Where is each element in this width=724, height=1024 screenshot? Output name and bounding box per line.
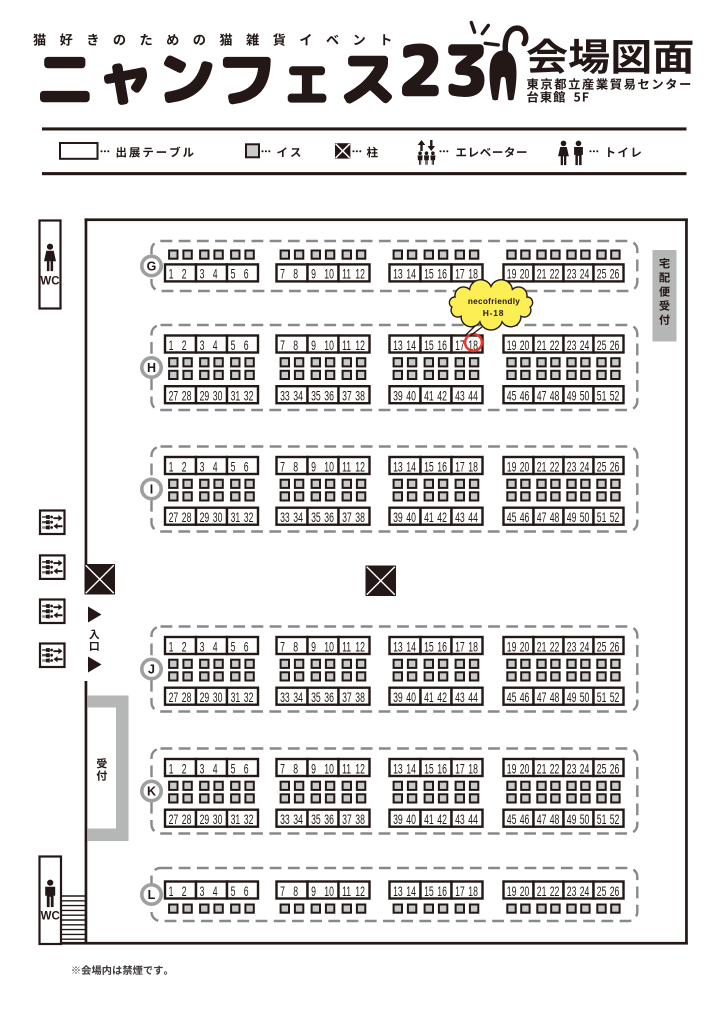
svg-text:6: 6 bbox=[244, 338, 249, 354]
svg-text:9: 9 bbox=[311, 338, 316, 354]
svg-text:35: 35 bbox=[311, 690, 321, 706]
svg-text:38: 38 bbox=[355, 690, 365, 706]
svg-text:3: 3 bbox=[200, 639, 205, 655]
svg-text:40: 40 bbox=[406, 690, 416, 706]
svg-text:9: 9 bbox=[311, 267, 316, 283]
svg-text:21: 21 bbox=[537, 761, 547, 777]
svg-text:21: 21 bbox=[537, 459, 547, 475]
svg-text:23: 23 bbox=[567, 761, 577, 777]
svg-text:39: 39 bbox=[393, 388, 403, 404]
svg-text:4: 4 bbox=[213, 338, 218, 354]
svg-text:13: 13 bbox=[393, 761, 403, 777]
svg-text:34: 34 bbox=[293, 690, 303, 706]
svg-text:27: 27 bbox=[169, 812, 179, 828]
svg-text:20: 20 bbox=[520, 639, 530, 655]
svg-text:12: 12 bbox=[355, 639, 365, 655]
svg-text:28: 28 bbox=[182, 690, 192, 706]
svg-text:38: 38 bbox=[355, 388, 365, 404]
svg-text:35: 35 bbox=[311, 510, 321, 526]
svg-text:36: 36 bbox=[324, 510, 334, 526]
svg-text:33: 33 bbox=[280, 812, 290, 828]
svg-text:37: 37 bbox=[342, 812, 352, 828]
svg-text:22: 22 bbox=[550, 639, 560, 655]
svg-text:15: 15 bbox=[424, 761, 434, 777]
svg-text:15: 15 bbox=[424, 267, 434, 283]
svg-text:9: 9 bbox=[311, 884, 316, 900]
svg-text:47: 47 bbox=[537, 388, 547, 404]
svg-text:29: 29 bbox=[200, 510, 210, 526]
svg-text:49: 49 bbox=[567, 690, 577, 706]
svg-text:41: 41 bbox=[424, 510, 434, 526]
svg-text:5: 5 bbox=[231, 459, 236, 475]
svg-text:19: 19 bbox=[507, 459, 517, 475]
svg-text:24: 24 bbox=[580, 761, 590, 777]
svg-text:18: 18 bbox=[468, 639, 478, 655]
svg-text:43: 43 bbox=[455, 388, 465, 404]
svg-text:14: 14 bbox=[406, 884, 416, 900]
svg-text:25: 25 bbox=[597, 639, 607, 655]
svg-text:2: 2 bbox=[182, 338, 187, 354]
svg-text:24: 24 bbox=[580, 884, 590, 900]
svg-text:23: 23 bbox=[567, 338, 577, 354]
svg-text:15: 15 bbox=[424, 459, 434, 475]
svg-text:52: 52 bbox=[610, 812, 620, 828]
svg-text:WC: WC bbox=[41, 911, 60, 923]
svg-text:38: 38 bbox=[355, 510, 365, 526]
svg-text:21: 21 bbox=[537, 884, 547, 900]
svg-text:8: 8 bbox=[293, 267, 298, 283]
svg-text:6: 6 bbox=[244, 267, 249, 283]
svg-text:33: 33 bbox=[280, 690, 290, 706]
svg-text:10: 10 bbox=[324, 761, 334, 777]
svg-text:23: 23 bbox=[567, 459, 577, 475]
svg-text:13: 13 bbox=[393, 267, 403, 283]
svg-text:41: 41 bbox=[424, 690, 434, 706]
svg-text:13: 13 bbox=[393, 338, 403, 354]
svg-text:19: 19 bbox=[507, 884, 517, 900]
svg-text:9: 9 bbox=[311, 459, 316, 475]
svg-text:31: 31 bbox=[231, 388, 241, 404]
svg-text:11: 11 bbox=[342, 639, 351, 655]
svg-text:12: 12 bbox=[355, 459, 365, 475]
svg-text:31: 31 bbox=[231, 510, 241, 526]
svg-text:13: 13 bbox=[393, 639, 403, 655]
svg-text:34: 34 bbox=[293, 388, 303, 404]
svg-text:46: 46 bbox=[520, 812, 530, 828]
svg-text:5: 5 bbox=[231, 639, 236, 655]
svg-text:22: 22 bbox=[550, 338, 560, 354]
svg-text:4: 4 bbox=[213, 267, 218, 283]
svg-text:7: 7 bbox=[280, 459, 285, 475]
svg-text:1: 1 bbox=[169, 267, 174, 283]
svg-text:8: 8 bbox=[293, 639, 298, 655]
svg-text:40: 40 bbox=[406, 812, 416, 828]
svg-text:30: 30 bbox=[213, 690, 223, 706]
svg-text:necofriendly: necofriendly bbox=[468, 297, 520, 306]
svg-text:32: 32 bbox=[244, 690, 254, 706]
svg-text:20: 20 bbox=[520, 338, 530, 354]
svg-text:36: 36 bbox=[324, 812, 334, 828]
svg-text:52: 52 bbox=[610, 690, 620, 706]
svg-text:26: 26 bbox=[610, 338, 620, 354]
svg-text:10: 10 bbox=[324, 639, 334, 655]
svg-text:17: 17 bbox=[455, 639, 465, 655]
svg-text:15: 15 bbox=[424, 884, 434, 900]
svg-text:50: 50 bbox=[580, 388, 590, 404]
svg-text:50: 50 bbox=[580, 812, 590, 828]
svg-text:G: G bbox=[147, 260, 157, 274]
svg-text:7: 7 bbox=[280, 338, 285, 354]
svg-text:1: 1 bbox=[169, 338, 174, 354]
svg-text:51: 51 bbox=[597, 510, 607, 526]
svg-text:43: 43 bbox=[455, 812, 465, 828]
svg-text:36: 36 bbox=[324, 388, 334, 404]
svg-text:7: 7 bbox=[280, 884, 285, 900]
svg-text:32: 32 bbox=[244, 812, 254, 828]
svg-text:42: 42 bbox=[437, 690, 447, 706]
svg-text:31: 31 bbox=[231, 812, 241, 828]
svg-text:11: 11 bbox=[342, 761, 351, 777]
svg-text:14: 14 bbox=[406, 761, 416, 777]
svg-text:3: 3 bbox=[200, 338, 205, 354]
svg-text:49: 49 bbox=[567, 388, 577, 404]
svg-text:10: 10 bbox=[324, 267, 334, 283]
svg-text:25: 25 bbox=[597, 459, 607, 475]
svg-text:41: 41 bbox=[424, 388, 434, 404]
svg-text:J: J bbox=[148, 663, 155, 677]
svg-text:12: 12 bbox=[355, 267, 365, 283]
svg-text:8: 8 bbox=[293, 459, 298, 475]
svg-text:2: 2 bbox=[182, 267, 187, 283]
svg-text:37: 37 bbox=[342, 690, 352, 706]
svg-text:11: 11 bbox=[342, 338, 351, 354]
svg-text:51: 51 bbox=[597, 690, 607, 706]
svg-text:20: 20 bbox=[520, 267, 530, 283]
svg-text:6: 6 bbox=[244, 639, 249, 655]
svg-text:15: 15 bbox=[424, 338, 434, 354]
svg-text:30: 30 bbox=[213, 812, 223, 828]
svg-text:32: 32 bbox=[244, 510, 254, 526]
svg-text:3: 3 bbox=[200, 884, 205, 900]
svg-text:29: 29 bbox=[200, 690, 210, 706]
svg-text:3: 3 bbox=[200, 459, 205, 475]
svg-text:41: 41 bbox=[424, 812, 434, 828]
svg-text:36: 36 bbox=[324, 690, 334, 706]
svg-text:4: 4 bbox=[213, 884, 218, 900]
svg-text:28: 28 bbox=[182, 812, 192, 828]
svg-text:46: 46 bbox=[520, 388, 530, 404]
svg-text:46: 46 bbox=[520, 510, 530, 526]
svg-text:30: 30 bbox=[213, 510, 223, 526]
svg-text:13: 13 bbox=[393, 884, 403, 900]
svg-text:48: 48 bbox=[550, 690, 560, 706]
svg-text:20: 20 bbox=[520, 459, 530, 475]
svg-text:42: 42 bbox=[437, 510, 447, 526]
svg-text:24: 24 bbox=[580, 639, 590, 655]
svg-text:5: 5 bbox=[231, 884, 236, 900]
svg-text:33: 33 bbox=[280, 510, 290, 526]
svg-text:45: 45 bbox=[507, 690, 517, 706]
svg-text:21: 21 bbox=[537, 338, 547, 354]
svg-text:48: 48 bbox=[550, 812, 560, 828]
svg-text:4: 4 bbox=[213, 639, 218, 655]
svg-text:16: 16 bbox=[437, 338, 447, 354]
svg-text:19: 19 bbox=[507, 761, 517, 777]
svg-text:45: 45 bbox=[507, 510, 517, 526]
svg-text:19: 19 bbox=[507, 338, 517, 354]
svg-text:35: 35 bbox=[311, 812, 321, 828]
svg-text:44: 44 bbox=[468, 388, 478, 404]
svg-text:47: 47 bbox=[537, 690, 547, 706]
svg-text:23: 23 bbox=[567, 267, 577, 283]
svg-text:25: 25 bbox=[597, 761, 607, 777]
svg-text:WC: WC bbox=[40, 276, 59, 288]
svg-text:22: 22 bbox=[550, 459, 560, 475]
svg-text:28: 28 bbox=[182, 388, 192, 404]
svg-text:4: 4 bbox=[213, 459, 218, 475]
svg-text:17: 17 bbox=[455, 459, 465, 475]
svg-text:14: 14 bbox=[406, 459, 416, 475]
svg-text:26: 26 bbox=[610, 761, 620, 777]
svg-text:22: 22 bbox=[550, 761, 560, 777]
svg-text:52: 52 bbox=[610, 388, 620, 404]
svg-text:34: 34 bbox=[293, 812, 303, 828]
svg-text:40: 40 bbox=[406, 510, 416, 526]
svg-text:40: 40 bbox=[406, 388, 416, 404]
svg-text:8: 8 bbox=[293, 884, 298, 900]
svg-text:52: 52 bbox=[610, 510, 620, 526]
svg-text:33: 33 bbox=[280, 388, 290, 404]
svg-text:26: 26 bbox=[610, 459, 620, 475]
svg-text:51: 51 bbox=[597, 812, 607, 828]
svg-text:39: 39 bbox=[393, 510, 403, 526]
svg-text:8: 8 bbox=[293, 761, 298, 777]
svg-text:16: 16 bbox=[437, 884, 447, 900]
svg-text:22: 22 bbox=[550, 267, 560, 283]
svg-text:46: 46 bbox=[520, 690, 530, 706]
svg-text:25: 25 bbox=[597, 884, 607, 900]
svg-text:5: 5 bbox=[231, 761, 236, 777]
svg-text:21: 21 bbox=[537, 267, 547, 283]
svg-text:42: 42 bbox=[437, 388, 447, 404]
svg-text:25: 25 bbox=[597, 338, 607, 354]
svg-text:50: 50 bbox=[580, 510, 590, 526]
svg-text:20: 20 bbox=[520, 761, 530, 777]
svg-text:38: 38 bbox=[355, 812, 365, 828]
svg-text:23: 23 bbox=[567, 639, 577, 655]
svg-text:24: 24 bbox=[580, 459, 590, 475]
svg-text:10: 10 bbox=[324, 459, 334, 475]
svg-text:30: 30 bbox=[213, 388, 223, 404]
svg-text:24: 24 bbox=[580, 338, 590, 354]
svg-text:39: 39 bbox=[393, 812, 403, 828]
svg-text:20: 20 bbox=[520, 884, 530, 900]
svg-text:19: 19 bbox=[507, 267, 517, 283]
svg-text:13: 13 bbox=[393, 459, 403, 475]
svg-text:16: 16 bbox=[437, 761, 447, 777]
svg-text:11: 11 bbox=[342, 267, 351, 283]
svg-text:8: 8 bbox=[293, 338, 298, 354]
svg-text:27: 27 bbox=[169, 510, 179, 526]
svg-text:18: 18 bbox=[468, 761, 478, 777]
svg-text:37: 37 bbox=[342, 510, 352, 526]
svg-text:5: 5 bbox=[231, 338, 236, 354]
svg-text:47: 47 bbox=[537, 510, 547, 526]
svg-text:16: 16 bbox=[437, 639, 447, 655]
svg-text:7: 7 bbox=[280, 267, 285, 283]
svg-text:2: 2 bbox=[182, 459, 187, 475]
svg-text:32: 32 bbox=[244, 388, 254, 404]
svg-text:25: 25 bbox=[597, 267, 607, 283]
svg-text:44: 44 bbox=[468, 812, 478, 828]
svg-text:19: 19 bbox=[507, 639, 517, 655]
svg-text:1: 1 bbox=[169, 639, 174, 655]
svg-text:15: 15 bbox=[424, 639, 434, 655]
svg-text:K: K bbox=[147, 785, 156, 799]
svg-text:26: 26 bbox=[610, 267, 620, 283]
svg-text:21: 21 bbox=[537, 639, 547, 655]
svg-text:12: 12 bbox=[355, 761, 365, 777]
svg-text:16: 16 bbox=[437, 267, 447, 283]
svg-text:29: 29 bbox=[200, 388, 210, 404]
svg-text:16: 16 bbox=[437, 459, 447, 475]
svg-text:43: 43 bbox=[455, 690, 465, 706]
svg-text:2: 2 bbox=[182, 761, 187, 777]
svg-text:4: 4 bbox=[213, 761, 218, 777]
svg-text:43: 43 bbox=[455, 510, 465, 526]
svg-text:45: 45 bbox=[507, 812, 517, 828]
svg-text:47: 47 bbox=[537, 812, 547, 828]
svg-text:11: 11 bbox=[342, 884, 351, 900]
svg-text:39: 39 bbox=[393, 690, 403, 706]
svg-text:12: 12 bbox=[355, 884, 365, 900]
svg-text:44: 44 bbox=[468, 510, 478, 526]
svg-text:29: 29 bbox=[200, 812, 210, 828]
svg-text:49: 49 bbox=[567, 812, 577, 828]
svg-text:17: 17 bbox=[455, 761, 465, 777]
svg-text:6: 6 bbox=[244, 884, 249, 900]
svg-text:I: I bbox=[150, 483, 153, 497]
svg-text:44: 44 bbox=[468, 690, 478, 706]
svg-text:49: 49 bbox=[567, 510, 577, 526]
svg-text:51: 51 bbox=[597, 388, 607, 404]
svg-text:14: 14 bbox=[406, 338, 416, 354]
svg-text:10: 10 bbox=[324, 884, 334, 900]
svg-text:12: 12 bbox=[355, 338, 365, 354]
svg-text:27: 27 bbox=[169, 388, 179, 404]
svg-text:17: 17 bbox=[455, 267, 465, 283]
svg-text:42: 42 bbox=[437, 812, 447, 828]
svg-text:22: 22 bbox=[550, 884, 560, 900]
svg-text:24: 24 bbox=[580, 267, 590, 283]
svg-text:18: 18 bbox=[468, 884, 478, 900]
svg-text:18: 18 bbox=[468, 459, 478, 475]
svg-text:7: 7 bbox=[280, 761, 285, 777]
svg-text:28: 28 bbox=[182, 510, 192, 526]
svg-text:H-18: H-18 bbox=[483, 308, 505, 318]
svg-text:14: 14 bbox=[406, 639, 416, 655]
svg-text:48: 48 bbox=[550, 510, 560, 526]
svg-text:1: 1 bbox=[169, 459, 174, 475]
svg-text:31: 31 bbox=[231, 690, 241, 706]
svg-text:35: 35 bbox=[311, 388, 321, 404]
svg-text:23: 23 bbox=[567, 884, 577, 900]
svg-text:17: 17 bbox=[455, 338, 465, 354]
svg-text:2: 2 bbox=[182, 884, 187, 900]
svg-text:17: 17 bbox=[455, 884, 465, 900]
svg-text:2: 2 bbox=[182, 639, 187, 655]
svg-text:5: 5 bbox=[231, 267, 236, 283]
svg-text:7: 7 bbox=[280, 639, 285, 655]
svg-text:11: 11 bbox=[342, 459, 351, 475]
svg-text:9: 9 bbox=[311, 639, 316, 655]
svg-text:1: 1 bbox=[169, 884, 174, 900]
svg-text:10: 10 bbox=[324, 338, 334, 354]
svg-text:34: 34 bbox=[293, 510, 303, 526]
svg-text:6: 6 bbox=[244, 761, 249, 777]
svg-text:1: 1 bbox=[169, 761, 174, 777]
svg-text:45: 45 bbox=[507, 388, 517, 404]
svg-text:48: 48 bbox=[550, 388, 560, 404]
svg-text:14: 14 bbox=[406, 267, 416, 283]
svg-text:3: 3 bbox=[200, 267, 205, 283]
svg-text:H: H bbox=[147, 361, 156, 375]
svg-text:26: 26 bbox=[610, 639, 620, 655]
svg-text:L: L bbox=[148, 888, 156, 902]
svg-text:3: 3 bbox=[200, 761, 205, 777]
svg-text:6: 6 bbox=[244, 459, 249, 475]
svg-text:26: 26 bbox=[610, 884, 620, 900]
svg-text:27: 27 bbox=[169, 690, 179, 706]
svg-text:37: 37 bbox=[342, 388, 352, 404]
svg-text:50: 50 bbox=[580, 690, 590, 706]
svg-text:9: 9 bbox=[311, 761, 316, 777]
